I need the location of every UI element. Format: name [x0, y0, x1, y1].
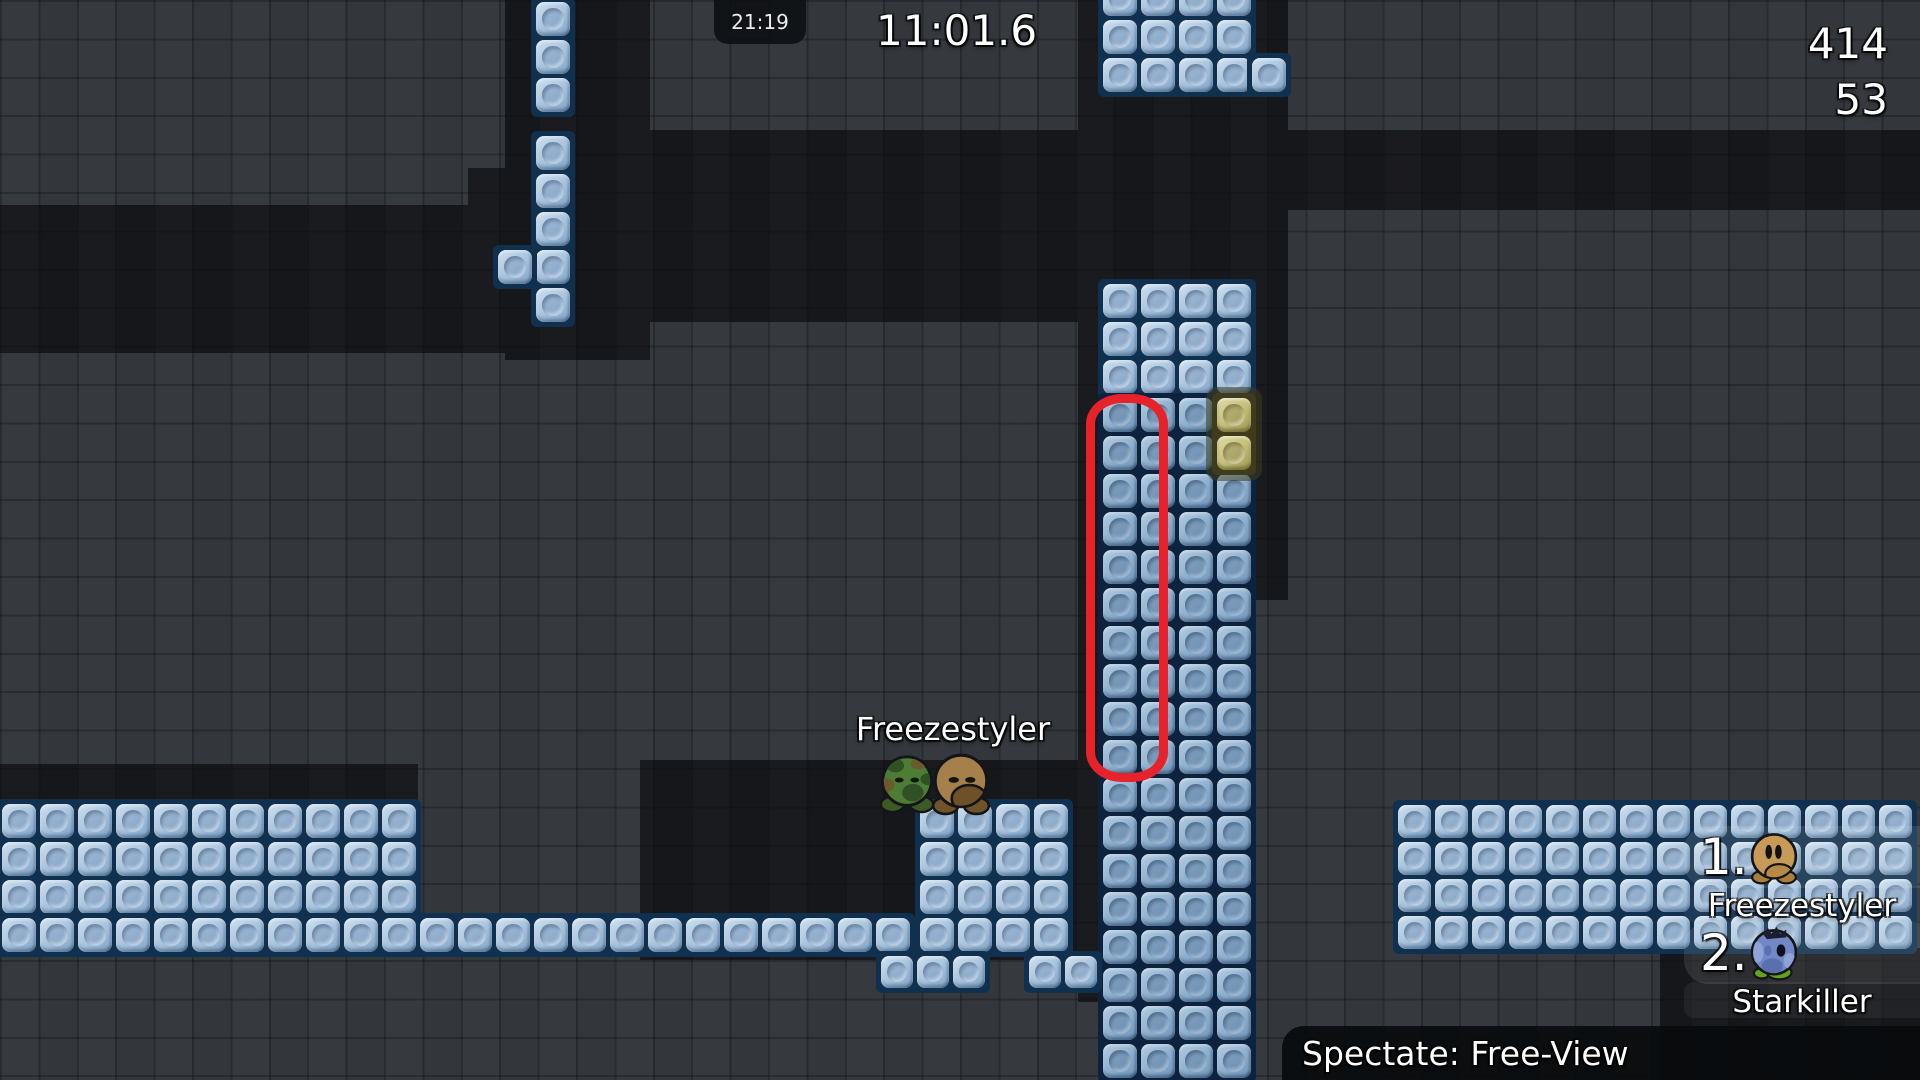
leaderboard-player-name: Starkiller [1684, 984, 1920, 1020]
server-clock-bubble: 21:19 [714, 0, 806, 44]
leaderboard-rank: 1. [1700, 828, 1748, 886]
top-right-stats: 414 53 [1808, 16, 1888, 128]
stat-value-bottom: 53 [1808, 72, 1888, 128]
race-timer: 11:01.6 [876, 6, 1037, 55]
leaderboard-player-name: Freezestyler [1684, 888, 1920, 924]
stat-value-top: 414 [1808, 16, 1888, 72]
hud-overlay: 21:19 11:01.6 414 53 1. Freezestyler [0, 0, 1920, 1080]
leaderboard-tee-icon [1746, 926, 1802, 982]
leaderboard-entry-2: 2. Starkiller [1684, 922, 1920, 1018]
leaderboard-rank: 2. [1700, 924, 1748, 982]
server-clock-text: 21:19 [731, 10, 789, 34]
spectate-label: Spectate: Free-View [1302, 1034, 1629, 1073]
spectate-panel: Spectate: Free-View [1282, 1026, 1920, 1080]
leaderboard-tee-icon [1746, 830, 1802, 886]
leaderboard-entry-1: 1. Freezestyler [1684, 826, 1920, 922]
game-viewport[interactable]: Freezestyler 21:19 11:01.6 414 53 1. [0, 0, 1920, 1080]
